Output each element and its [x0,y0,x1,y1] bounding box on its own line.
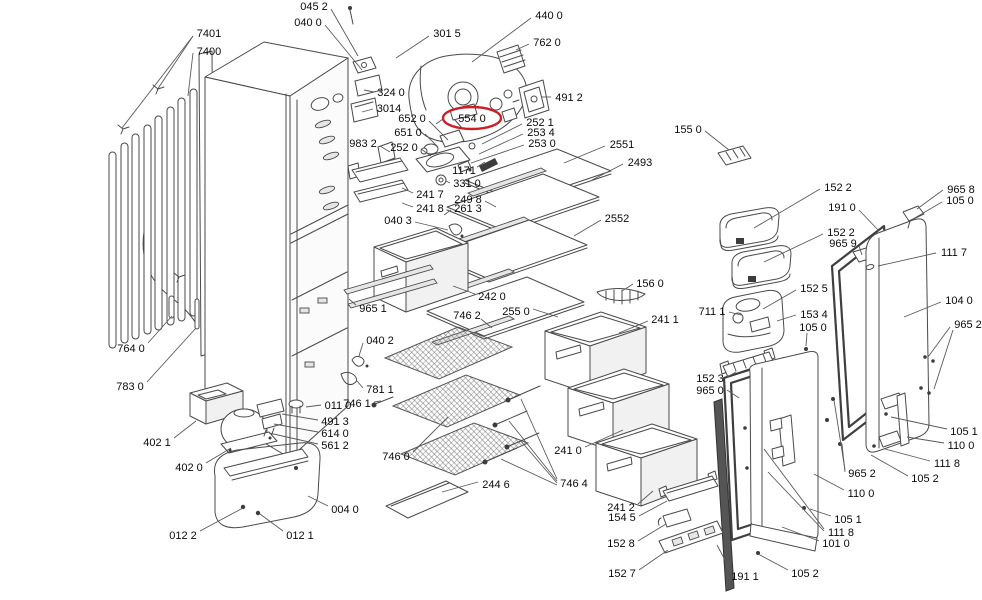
leader-line-9658 [917,190,943,209]
part-label-7620-6[interactable]: 762 0 [533,37,561,49]
part-label-9651-31[interactable]: 965 1 [359,303,387,315]
part-label-0403-24[interactable]: 040 3 [384,215,412,227]
part-label-1534-45[interactable]: 153 4 [800,309,828,321]
heatsink-drawing [497,45,525,73]
dairy-bin-drawing [723,290,784,352]
part-label-1528-53[interactable]: 152 8 [607,538,635,550]
part-label-1560-29[interactable]: 156 0 [636,278,664,290]
part-label-2417-20[interactable]: 241 7 [416,189,444,201]
part-label-7640-58[interactable]: 764 0 [117,343,145,355]
part-label-4913-66[interactable]: 491 3 [321,416,349,428]
part-label-2446-56[interactable]: 244 6 [482,479,510,491]
leader-line-5540 [436,119,443,124]
tube-7640 [169,296,174,318]
part-label-2418-22[interactable]: 241 8 [416,203,444,215]
egg-tray-drawing [597,288,645,304]
leader-line-7811 [357,381,363,388]
part-label-6520-11[interactable]: 652 0 [398,113,426,125]
part-label-1100-80[interactable]: 110 0 [948,440,975,452]
leader-line-2530 [471,145,524,163]
refrigerator-exploded-view: 74017400045 2040 0301 5440 0762 0324 030… [0,0,982,600]
leader-line-4020 [206,448,231,463]
part-label-9659-37[interactable]: 965 9 [829,238,857,250]
part-label-2550-32[interactable]: 255 0 [502,306,530,318]
part-label-2410-50[interactable]: 241 0 [554,445,582,457]
part-label-1545-52[interactable]: 154 5 [608,512,636,524]
part-label-4020-61[interactable]: 402 0 [175,462,203,474]
part-label-1527-54[interactable]: 152 7 [608,568,636,580]
part-label-1118-81[interactable]: 111 8 [934,458,960,470]
part-label-1550-25[interactable]: 155 0 [674,124,702,136]
leader-line-9652 [928,327,950,357]
leader-line-6520 [429,121,448,140]
part-label-2552-28[interactable]: 2552 [605,213,629,225]
leader-line-0402 [359,343,363,356]
leader-line-9652 [842,444,845,472]
part-label-0402-69[interactable]: 040 2 [366,335,394,347]
part-label-1525-44[interactable]: 152 5 [800,283,828,295]
leader-line-1050 [806,333,807,346]
part-label-7111-43[interactable]: 711 1 [699,306,726,318]
part-label-2551-26[interactable]: 2551 [610,139,634,151]
part-label-2613-23[interactable]: 261 3 [454,203,482,215]
clip-0403-icon [449,224,462,235]
part-label-1010-74[interactable]: 101 0 [822,538,850,550]
part-label-1100-77[interactable]: 110 0 [848,488,875,500]
part-label-0452-2[interactable]: 045 2 [300,1,328,13]
part-label-1910-35[interactable]: 191 0 [828,202,856,214]
leader-line-1528 [638,524,666,541]
part-label-7464-57[interactable]: 746 4 [560,478,588,490]
part-label-9832-17[interactable]: 983 2 [349,138,377,150]
leader-line-1910 [859,210,879,231]
part-label-2420-30[interactable]: 242 0 [478,291,506,303]
part-label-9652-42[interactable]: 965 2 [954,319,982,331]
part-label-7401-0[interactable]: 7401 [197,28,221,40]
part-label-7461-71[interactable]: 746 1 [343,398,371,410]
part-label-3015-4[interactable]: 301 5 [433,28,461,40]
leader-line-2418 [402,203,413,207]
part-label-6140-67[interactable]: 614 0 [321,428,349,440]
part-label-1050-39[interactable]: 105 0 [946,195,974,207]
glass-plate-drawing [386,481,468,518]
leader-line-1527 [639,550,668,570]
part-label-3310-19[interactable]: 331 0 [453,178,481,190]
leader-line-1100 [907,437,944,443]
leader-line-2552 [574,220,601,236]
part-label-7830-59[interactable]: 783 0 [116,381,144,393]
part-label-3240-7[interactable]: 324 0 [377,87,405,99]
leader-line-3310 [446,181,450,183]
part-label-1911-72[interactable]: 191 1 [731,571,759,583]
part-label-6510-12[interactable]: 651 0 [394,127,422,139]
part-label-2493-27[interactable]: 2493 [628,157,652,169]
part-label-2530-16[interactable]: 253 0 [528,138,556,150]
part-label-7462-33[interactable]: 746 2 [453,310,481,322]
part-label-1522-34[interactable]: 152 2 [824,182,852,194]
leader-line-2534 [479,134,523,154]
leader-line-1550 [705,131,729,150]
part-label-7811-70[interactable]: 781 1 [366,384,394,396]
part-label-9650-49[interactable]: 965 0 [696,385,724,397]
parts-diagram-canvas: 74017400045 2040 0301 5440 0762 0324 030… [0,0,982,600]
leader-line-9650 [727,390,739,398]
part-label-1171-18[interactable]: 1171 [452,165,476,177]
condenser-coil-drawing [109,51,214,356]
freezer-door-drawing [743,352,818,551]
part-label-1118-75[interactable]: 111 8 [828,527,854,539]
leader-line-1052 [871,455,908,476]
part-label-2520-13[interactable]: 252 0 [390,142,418,154]
part-label-5612-68[interactable]: 561 2 [321,440,349,452]
part-label-2411-47[interactable]: 241 1 [651,314,679,326]
door-bins-drawing [720,208,791,289]
leveling-foot [289,400,303,408]
freezer-drawers-drawing [545,312,697,506]
part-label-1052-82[interactable]: 105 2 [911,473,939,485]
leader-line-9652 [934,330,953,389]
part-label-7400-1[interactable]: 7400 [197,46,221,58]
leader-line-1052 [758,554,788,570]
part-label-0121-63[interactable]: 012 1 [286,530,314,542]
part-label-1051-79[interactable]: 105 1 [950,426,978,438]
clip-0402-icon [352,356,364,366]
leader-line-1118 [885,449,930,461]
leader-line-4021 [174,421,196,438]
part-label-0400-3[interactable]: 040 0 [294,17,322,29]
part-label-4021-60[interactable]: 402 1 [143,437,171,449]
part-label-1051-76[interactable]: 105 1 [834,514,862,526]
part-label-0122-62[interactable]: 012 2 [169,530,197,542]
part-label-5540-10[interactable]: 554 0 [458,113,486,125]
leader-line-0403 [415,222,448,230]
part-label-1040-41[interactable]: 104 0 [945,295,973,307]
tube-7830 [195,299,199,329]
leader-line-7401 [157,36,193,90]
door-tray-small-drawing [718,146,751,165]
part-label-1052-73[interactable]: 105 2 [791,568,819,580]
part-label-0040-64[interactable]: 004 0 [331,504,359,516]
part-label-4912-9[interactable]: 491 2 [555,92,583,104]
part-label-1050-46[interactable]: 105 0 [799,322,827,334]
leader-line-7464 [509,421,557,481]
part-label-1523-48[interactable]: 152 3 [696,373,724,385]
leader-line-3015 [396,36,429,58]
part-label-4400-5[interactable]: 440 0 [535,10,563,22]
part-label-9652-78[interactable]: 965 2 [848,468,876,480]
part-label-7460-55[interactable]: 746 0 [382,451,410,463]
fridge-door-drawing [865,206,934,452]
part-label-1117-40[interactable]: 111 7 [941,247,967,259]
leader-line-2613 [444,210,451,215]
